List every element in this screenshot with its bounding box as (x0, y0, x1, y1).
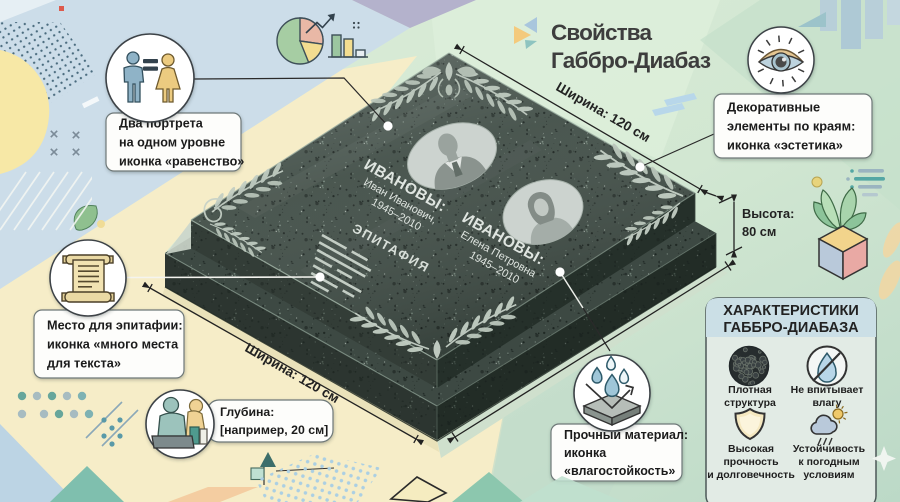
svg-text:[например, 20 см]: [например, 20 см] (220, 423, 328, 437)
svg-text:прочность: прочность (723, 456, 779, 468)
svg-text:Габбро-Диабаз: Габбро-Диабаз (551, 48, 711, 73)
svg-text:Свойства: Свойства (551, 20, 652, 45)
svg-text:Место для эпитафии:: Место для эпитафии: (47, 318, 183, 332)
svg-text:и долговечность: и долговечность (707, 469, 795, 481)
svg-text:иконка «много места: иконка «много места (47, 337, 179, 351)
svg-text:иконка «эстетика»: иконка «эстетика» (727, 137, 843, 152)
svg-text:иконка: иконка (564, 446, 607, 460)
svg-text:«влагостойкость»: «влагостойкость» (564, 464, 675, 478)
svg-text:Глубина:: Глубина: (220, 405, 274, 419)
svg-text:условиям: условиям (803, 469, 854, 481)
svg-text:структура: структура (724, 397, 776, 409)
svg-text:ХАРАКТЕРИСТИКИ: ХАРАКТЕРИСТИКИ (723, 303, 859, 319)
svg-text:Прочный материал:: Прочный материал: (564, 428, 688, 442)
svg-text:иконка «равенство»: иконка «равенство» (119, 154, 244, 168)
svg-text:Высота:: Высота: (742, 206, 794, 221)
svg-text:ГАББРО-ДИАБАЗА: ГАББРО-ДИАБАЗА (723, 320, 859, 336)
svg-text:Высокая: Высокая (728, 443, 774, 455)
svg-text:для текста»: для текста» (47, 356, 121, 370)
svg-text:Устойчивость: Устойчивость (793, 443, 866, 455)
svg-text:Плотная: Плотная (728, 384, 772, 396)
svg-text:Не впитывает: Не впитывает (791, 384, 864, 396)
svg-text:Декоративные: Декоративные (727, 99, 820, 114)
svg-text:на одном уровне: на одном уровне (119, 135, 225, 149)
svg-text:80 см: 80 см (742, 224, 776, 239)
svg-text:к погодным: к погодным (798, 456, 859, 468)
svg-text:элементы по краям:: элементы по краям: (727, 118, 855, 133)
